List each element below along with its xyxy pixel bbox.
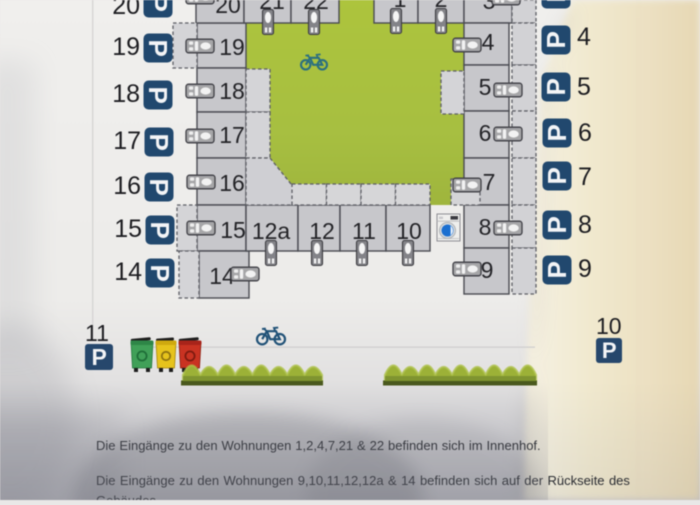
svg-text:19: 19 bbox=[219, 34, 245, 60]
svg-text:8: 8 bbox=[578, 211, 592, 239]
svg-text:18: 18 bbox=[219, 78, 245, 104]
svg-text:9: 9 bbox=[481, 257, 494, 283]
svg-text:P: P bbox=[92, 344, 107, 370]
svg-text:7: 7 bbox=[578, 163, 592, 191]
svg-text:17: 17 bbox=[219, 122, 245, 148]
svg-text:5: 5 bbox=[479, 74, 492, 100]
svg-text:7: 7 bbox=[483, 169, 496, 195]
svg-text:10: 10 bbox=[596, 313, 622, 339]
svg-text:15: 15 bbox=[220, 217, 246, 243]
svg-text:15: 15 bbox=[114, 215, 142, 243]
svg-text:16: 16 bbox=[113, 172, 141, 200]
svg-text:4: 4 bbox=[482, 29, 495, 55]
svg-text:P: P bbox=[602, 338, 617, 363]
svg-text:17: 17 bbox=[113, 127, 141, 155]
svg-text:14: 14 bbox=[114, 258, 142, 286]
svg-text:20: 20 bbox=[112, 0, 140, 20]
svg-text:19: 19 bbox=[112, 33, 140, 61]
svg-text:5: 5 bbox=[577, 73, 591, 101]
svg-text:9: 9 bbox=[578, 255, 592, 283]
svg-text:4: 4 bbox=[577, 23, 591, 51]
svg-text:16: 16 bbox=[219, 170, 245, 196]
svg-text:8: 8 bbox=[479, 214, 492, 240]
svg-text:6: 6 bbox=[479, 120, 492, 146]
svg-text:11: 11 bbox=[85, 320, 109, 346]
svg-text:18: 18 bbox=[112, 80, 140, 108]
svg-text:20: 20 bbox=[215, 0, 241, 18]
svg-text:6: 6 bbox=[578, 119, 592, 147]
